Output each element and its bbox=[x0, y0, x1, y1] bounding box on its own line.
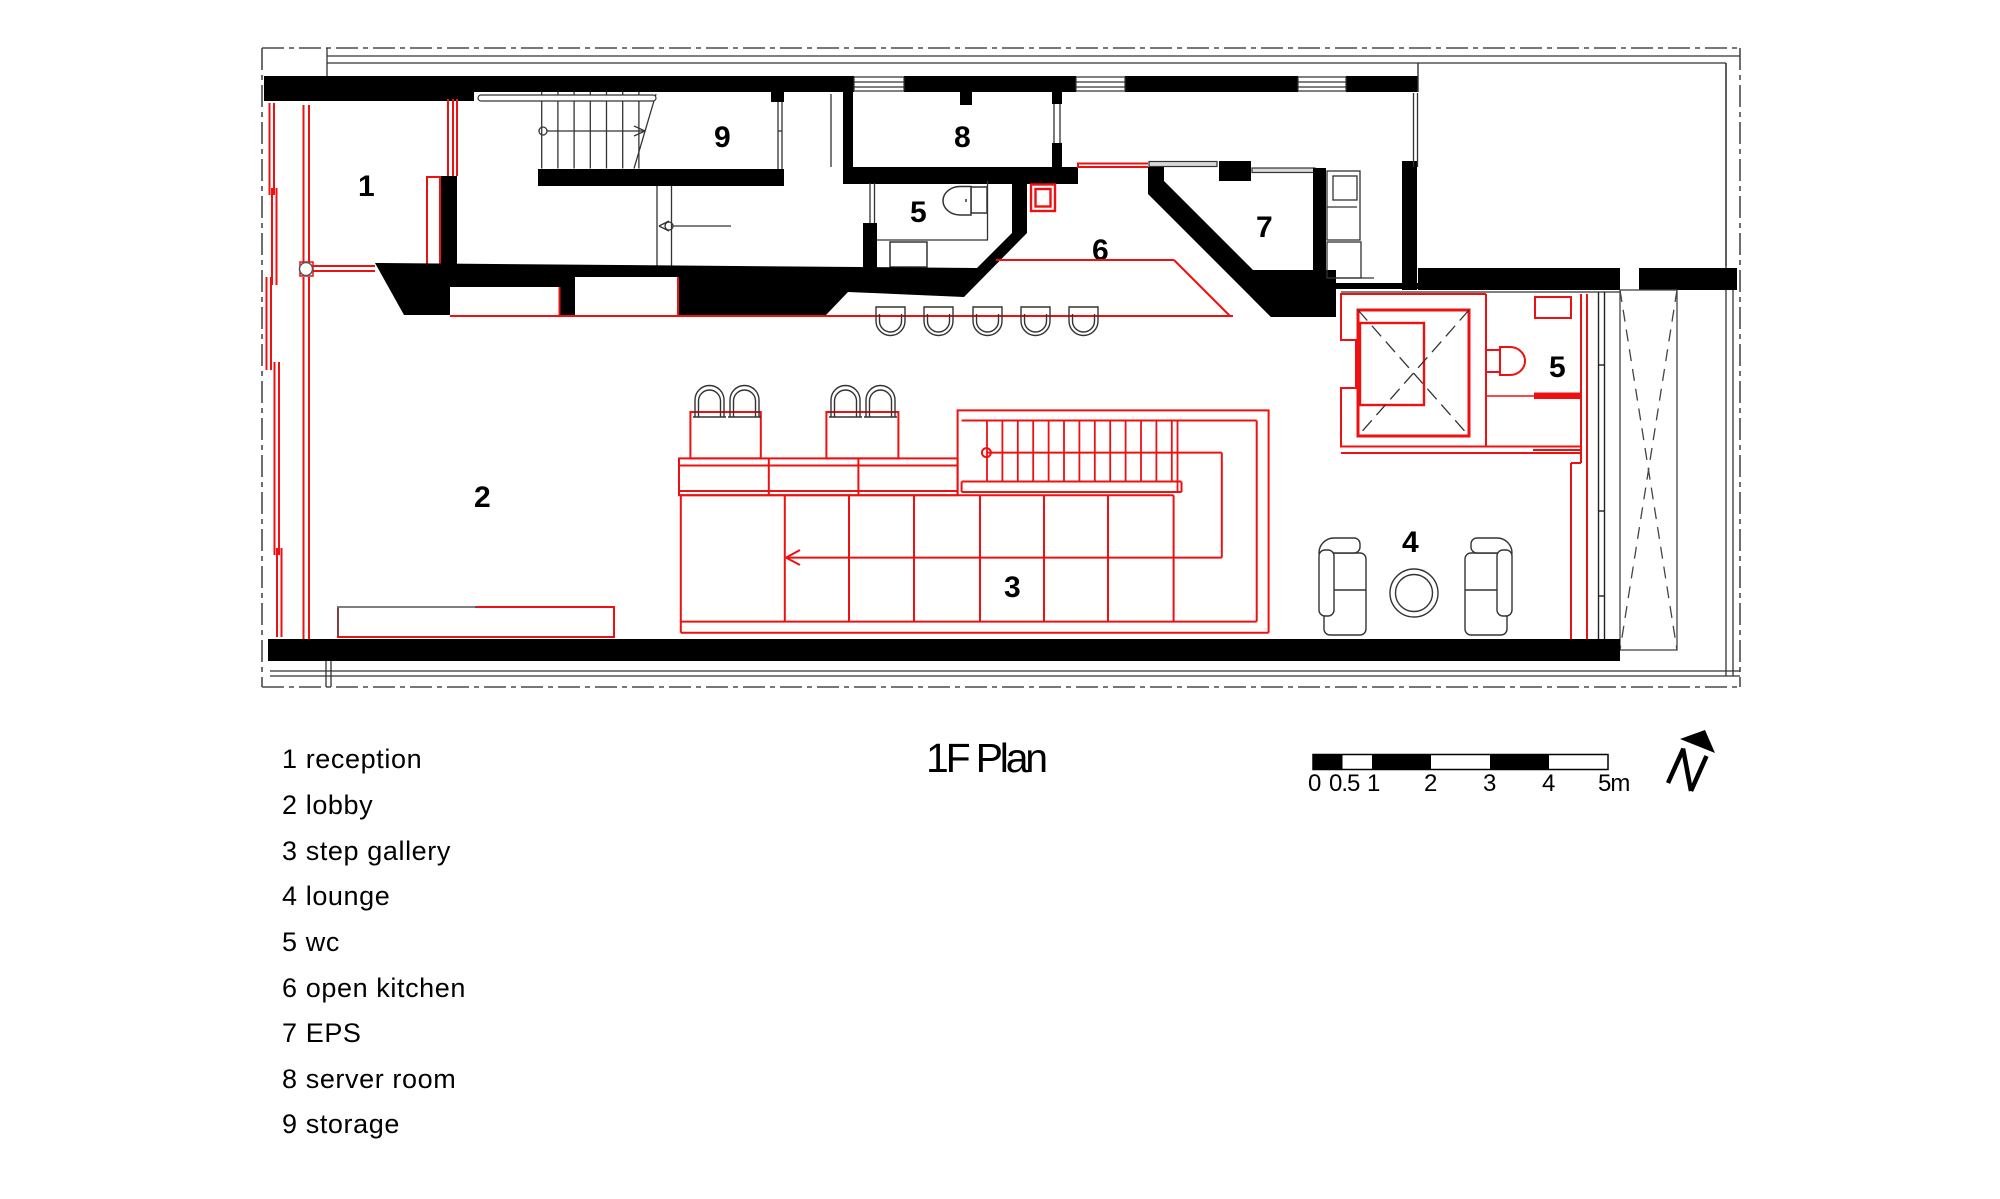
svg-text:5: 5 bbox=[910, 196, 927, 229]
svg-text:5m: 5m bbox=[1598, 770, 1629, 797]
svg-text:7 EPS: 7 EPS bbox=[282, 1018, 362, 1048]
svg-text:0: 0 bbox=[1308, 770, 1321, 797]
svg-text:3 step gallery: 3 step gallery bbox=[282, 836, 451, 866]
svg-text:8: 8 bbox=[954, 121, 971, 154]
svg-text:9: 9 bbox=[714, 121, 731, 154]
svg-text:6: 6 bbox=[1092, 234, 1109, 267]
svg-text:1: 1 bbox=[358, 170, 375, 203]
svg-text:4: 4 bbox=[1542, 770, 1555, 797]
svg-text:9 storage: 9 storage bbox=[282, 1109, 400, 1139]
svg-text:1 reception: 1 reception bbox=[282, 744, 422, 774]
svg-text:2: 2 bbox=[1424, 770, 1437, 797]
svg-text:7: 7 bbox=[1256, 211, 1273, 244]
svg-text:2: 2 bbox=[474, 481, 491, 514]
svg-text:0.5: 0.5 bbox=[1329, 770, 1360, 797]
svg-text:5: 5 bbox=[1549, 351, 1566, 384]
svg-text:3: 3 bbox=[1004, 571, 1021, 604]
svg-text:3: 3 bbox=[1483, 770, 1496, 797]
svg-text:4: 4 bbox=[1402, 526, 1419, 559]
svg-text:1F Plan: 1F Plan bbox=[926, 735, 1046, 781]
svg-text:5 wc: 5 wc bbox=[282, 927, 340, 957]
svg-text:2 lobby: 2 lobby bbox=[282, 790, 373, 820]
svg-text:6 open kitchen: 6 open kitchen bbox=[282, 973, 466, 1003]
svg-text:4 lounge: 4 lounge bbox=[282, 881, 390, 911]
svg-text:8 server room: 8 server room bbox=[282, 1064, 456, 1094]
svg-text:1: 1 bbox=[1367, 770, 1380, 797]
